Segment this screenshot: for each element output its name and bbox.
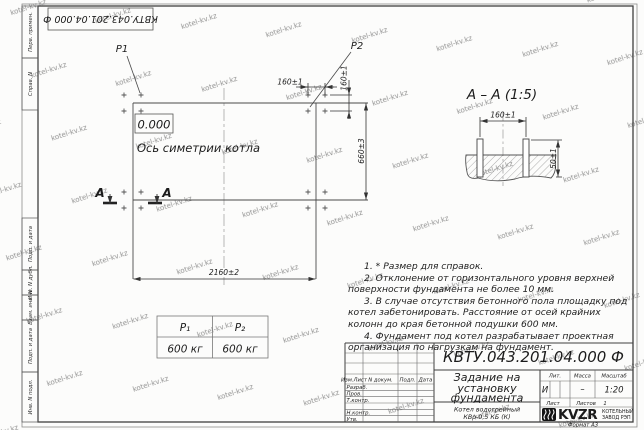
sig-row-razrab: Разраб. <box>347 385 368 391</box>
anchor-bolt <box>523 139 529 177</box>
technical-notes: 1. * Размер для справок. 2. Отклонение о… <box>348 261 632 354</box>
margin-label: Взам. инв. N <box>28 290 34 324</box>
load-point-p1-label: P1 <box>116 44 128 55</box>
col-header-data: Дата <box>418 378 433 384</box>
doc-title-line: фундамента <box>451 392 524 405</box>
note-item: 2. Отклонение от горизонтального уровня … <box>348 273 632 296</box>
sig-row-prov: Пров. <box>347 392 362 398</box>
sheets-count: 1 <box>603 401 606 407</box>
note-item: 4. Фундамент под котел разрабатывает про… <box>348 331 632 354</box>
company-name-line: КОТЕЛЬНЫЙ <box>602 408 634 415</box>
margin-label: Перв. примен. <box>28 12 34 52</box>
loads-table-header: P₁ <box>180 322 191 334</box>
margin-label: Инв. N подл. <box>28 380 34 415</box>
margin-label: Справ. N <box>28 72 34 96</box>
col-header-izm-list: Изм.Лист <box>341 378 368 384</box>
top-stamp-designation: КВТУ.043.201.04.000 Ф <box>43 13 158 24</box>
margin-label: Подп. и дата <box>28 328 34 364</box>
sig-row-utv: Утв. <box>347 417 358 423</box>
load-point-p2-label: P2 <box>351 41 363 52</box>
product-name-line: КВр-0,5 КБ (К) <box>463 414 510 421</box>
loads-table-value: 600 кг <box>167 344 203 356</box>
lit-value: И <box>542 386 549 396</box>
col-header-docnum: N докум. <box>368 378 393 384</box>
symmetry-axis-label: Ось симетрии котла <box>137 141 260 155</box>
section-view-title: А – А (1:5) <box>466 87 537 103</box>
drawing-canvas: kotel-kv.kz kotel-kv.kz Перв. примен. Сп… <box>0 0 644 430</box>
drawing-sheet: kotel-kv.kz kotel-kv.kz Перв. примен. Сп… <box>0 0 644 430</box>
dim-text: 2160±2 <box>209 268 239 277</box>
sheets-label: Листов <box>575 401 596 407</box>
sig-row-nkontr: Н.контр. <box>347 411 371 417</box>
loads-table-value: 600 кг <box>222 344 258 356</box>
dim-text: 660±3 <box>357 138 366 164</box>
note-item: 3. В случае отсутствия бетонного пола пл… <box>348 296 632 331</box>
logo-text: KVZR <box>558 407 598 423</box>
section-letter: А <box>161 186 171 200</box>
elevation-value: 0.000 <box>138 118 171 132</box>
format-label: Формат А3 <box>568 423 599 429</box>
sheet-label: Лист <box>545 401 560 407</box>
dim-text: 160±1 <box>277 78 302 87</box>
margin-label: Подп. и дата <box>28 226 34 262</box>
lit-header: Лит. <box>548 374 561 380</box>
loads-table-header: P₂ <box>235 322 246 334</box>
sig-row-tkontr: Т.контр. <box>347 398 370 404</box>
section-letter: А <box>94 186 104 200</box>
mass-value: – <box>580 385 584 395</box>
mass-header: Масса <box>574 374 591 380</box>
anchor-bolt <box>477 139 483 177</box>
scale-header: Масштаб <box>601 374 627 380</box>
company-name-line: ЗАВОД РЭП <box>602 415 631 421</box>
col-header-podp: Подп. <box>399 378 415 384</box>
dim-text: 50±1 <box>549 148 558 169</box>
note-item: 1. * Размер для справок. <box>348 261 632 273</box>
product-name-line: Котел водогрейный <box>454 407 520 414</box>
scale-value: 1:20 <box>604 386 623 396</box>
dim-text: 160±1 <box>490 111 515 120</box>
dim-text: 160±1 <box>340 65 349 90</box>
